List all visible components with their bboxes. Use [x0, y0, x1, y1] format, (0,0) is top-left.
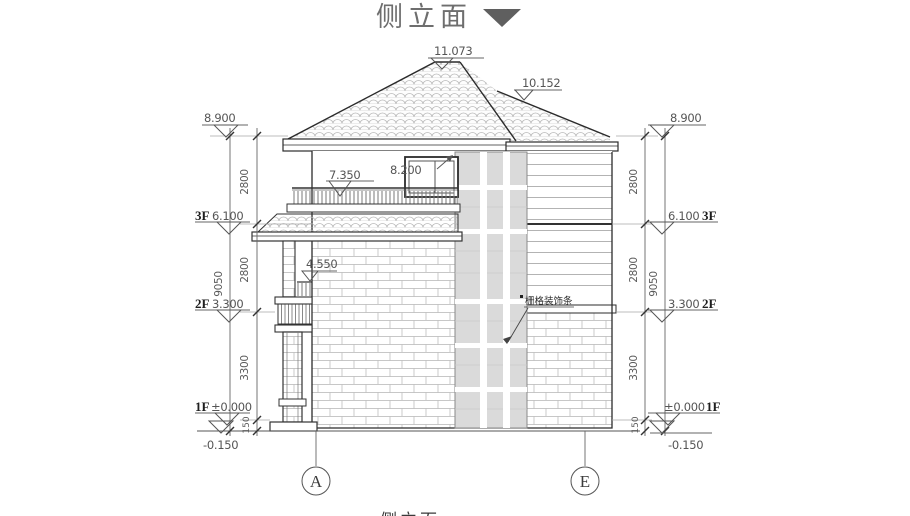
ground-level-right: -0.150 — [668, 438, 703, 452]
pillar-mid-band — [279, 399, 306, 406]
glass-curtain-wall — [455, 152, 527, 428]
canopy-fascia — [252, 232, 462, 241]
grid-label-e: E — [580, 472, 590, 491]
level-triangle-icon — [650, 222, 674, 234]
level-triangle-icon — [215, 413, 239, 425]
grid-markers: A E — [302, 431, 599, 495]
dim-plinth-right: 150 — [631, 416, 641, 433]
railing-balusters — [292, 191, 458, 204]
balcony-slab-band — [287, 204, 460, 212]
grille-callout-label: 栅格装饰条 — [525, 295, 573, 307]
secondary-apex-level: 10.152 — [522, 76, 560, 90]
dim-total-left: 9050 — [213, 271, 225, 297]
roof — [280, 55, 620, 151]
pillar-slab-band — [275, 297, 312, 304]
level-triangle-icon — [217, 222, 241, 234]
level-triangle-icon — [217, 310, 241, 322]
level-triangle-icon — [515, 90, 533, 100]
siding-wall-2f — [527, 226, 612, 292]
small-rail-level: 4.550 — [306, 257, 337, 271]
pillar-upper — [283, 241, 295, 297]
floor2-label-left: 2F — [195, 296, 210, 311]
small-rail-balusters — [297, 283, 312, 296]
glass-mullion-gap-1 — [480, 152, 487, 428]
pillar-base — [270, 422, 317, 431]
floor1-label-right: 1F — [706, 399, 721, 414]
side-elevation-canvas: 侧立面 — [0, 0, 910, 516]
eave-band-right — [506, 142, 618, 151]
floor3-label-left: 3F — [195, 208, 210, 223]
eave-level-right: 8.900 — [670, 111, 701, 125]
window-level: 8.200 — [390, 163, 421, 177]
floor1-level-right: ±0.000 — [664, 400, 705, 414]
drawing-title: 侧立面 — [376, 2, 521, 33]
glass-strip — [455, 152, 527, 428]
eave-level-left: 8.900 — [204, 111, 235, 125]
elevation-drawing-page: { "title": { "text": "侧立面" }, "drawing":… — [0, 0, 910, 516]
dim-floor1-right: 3300 — [628, 355, 640, 381]
dimensions-right: 9050 2800 2800 3300 150 8.900 6.100 3F 3… — [612, 111, 721, 452]
floor2-label-right: 2F — [702, 296, 717, 311]
title-triangle-icon — [483, 9, 521, 27]
dim-plinth-left: 150 — [242, 416, 252, 433]
floor2-level-right: 3.300 — [668, 297, 699, 311]
floor1-level-left: ±0.000 — [211, 400, 252, 414]
level-triangle-icon — [214, 125, 238, 137]
callout-dot-icon — [520, 295, 523, 298]
level-triangle-icon — [656, 413, 680, 425]
grid-label-a: A — [310, 472, 323, 491]
canopy-tiles — [258, 214, 458, 232]
glass-mullion-gap-2 — [503, 152, 510, 428]
floor3-label-right: 3F — [702, 208, 717, 223]
dim-floor2-right: 2800 — [628, 257, 640, 283]
dim-floor1-left: 3300 — [239, 355, 251, 381]
roof-tile-pattern — [280, 55, 620, 147]
siding-wall-3f — [527, 152, 612, 224]
floor2-level-left: 3.300 — [212, 297, 243, 311]
floor3-level-right: 6.100 — [668, 209, 699, 223]
level-triangle-icon — [650, 125, 674, 137]
level-triangle-icon — [650, 310, 674, 322]
dim-total-right: 9050 — [648, 271, 660, 297]
floor1-label-left: 1F — [195, 399, 210, 414]
floor3-level-left: 6.100 — [212, 209, 243, 223]
dim-floor2-left: 2800 — [239, 257, 251, 283]
dim-floor3-right: 2800 — [628, 169, 640, 195]
drawing-caption-clipped: 侧立面 — [380, 511, 440, 516]
balcony-rail-level: 7.350 — [329, 168, 360, 182]
main-apex-level: 11.073 — [434, 44, 472, 58]
pillar-lower — [283, 332, 302, 422]
brick-wall-right-1f — [527, 313, 612, 428]
page-title: 侧立面 — [376, 2, 472, 33]
pillar-band — [275, 325, 312, 332]
ground-level-left: -0.150 — [203, 438, 238, 452]
dim-floor3-left: 2800 — [239, 169, 251, 195]
pillar-fluted-frieze — [278, 304, 312, 324]
